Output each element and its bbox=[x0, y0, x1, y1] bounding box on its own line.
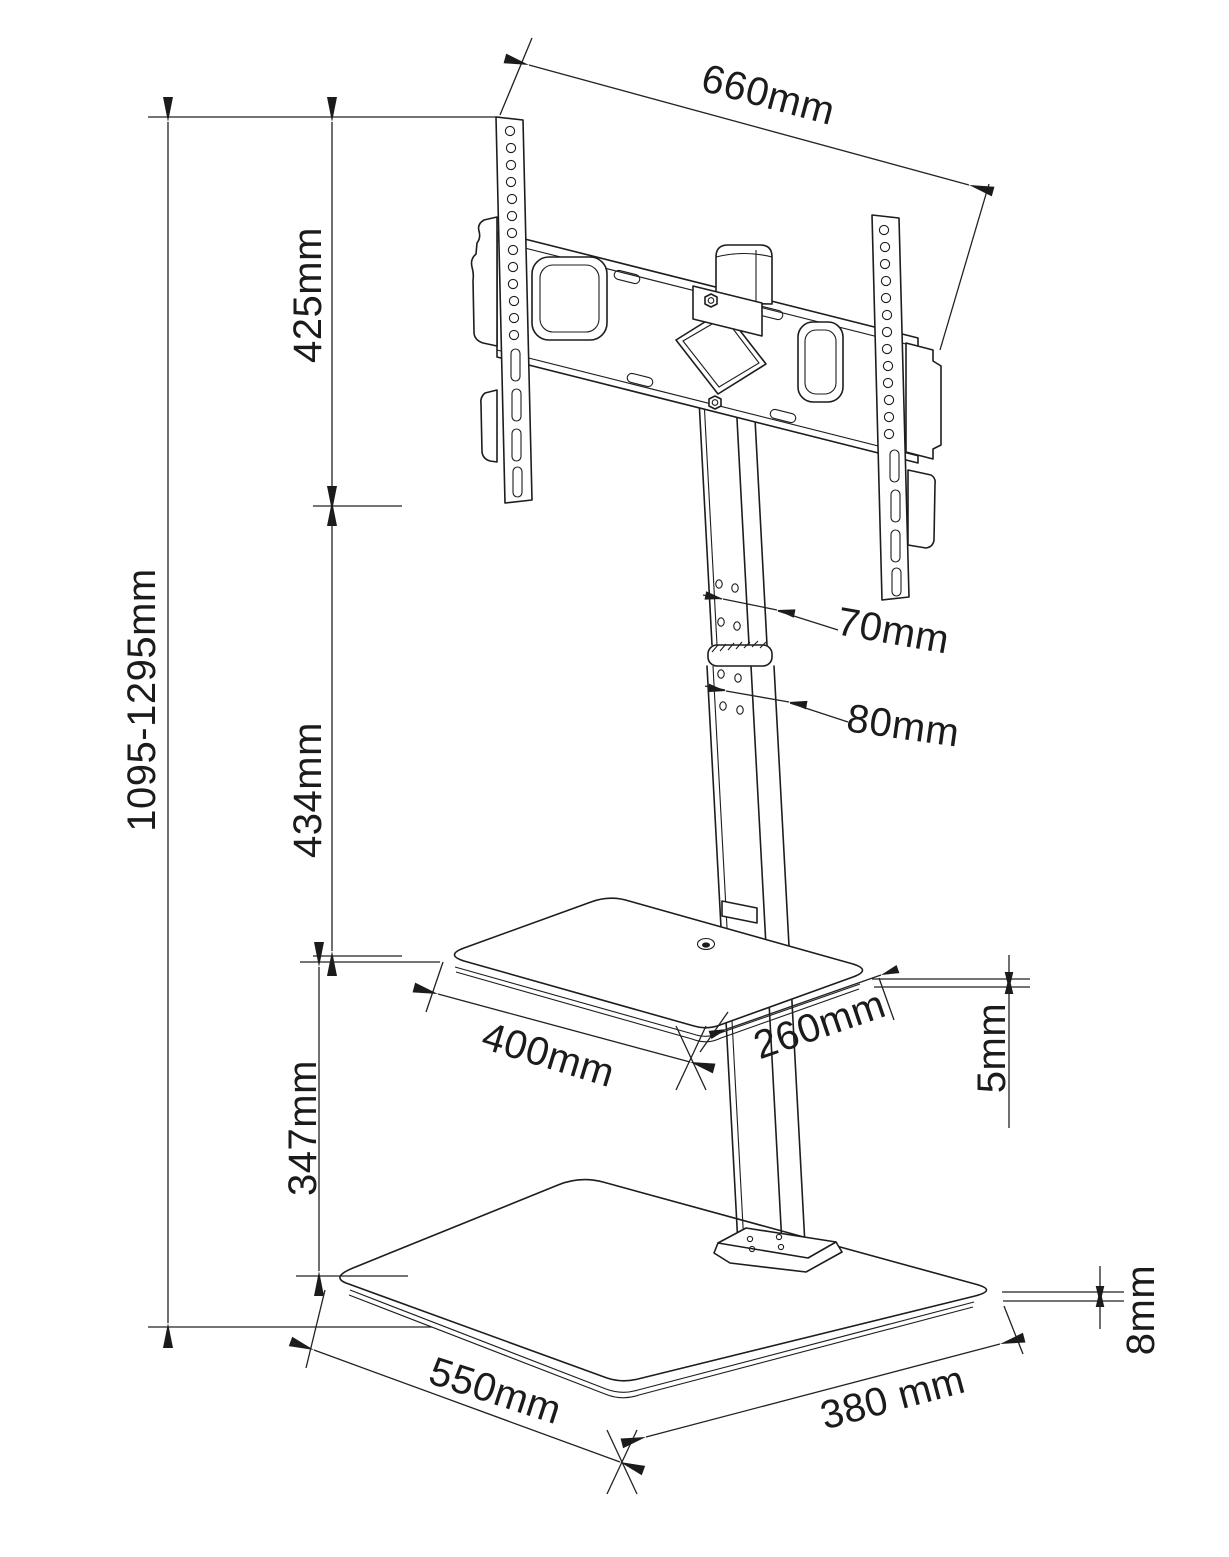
crossbar-end-cap bbox=[906, 343, 941, 459]
pole-collar bbox=[708, 641, 772, 666]
shelf-thickness-label: 5mm bbox=[970, 1003, 1014, 1093]
base-thickness-label: 8mm bbox=[1119, 1265, 1163, 1355]
lower-pole-label: 80mm bbox=[844, 696, 962, 755]
bracket-width-label: 660mm bbox=[697, 56, 840, 134]
left-lower-plate bbox=[481, 390, 497, 462]
diagram-canvas: 1095-1295mm 425mm 434mm 347mm 660mm bbox=[0, 0, 1229, 1557]
right-lower-plate bbox=[908, 470, 935, 548]
pole-column bbox=[699, 400, 805, 1245]
dim-shelf-to-base: 347mm bbox=[281, 962, 440, 1276]
shelf-to-base-label: 347mm bbox=[281, 1060, 325, 1196]
left-vesa-rail bbox=[496, 117, 532, 503]
dim-shelf-thickness: 5mm bbox=[872, 955, 1030, 1128]
shelf-width-label: 400mm bbox=[477, 1014, 620, 1096]
upper-pole-label: 70mm bbox=[834, 600, 953, 663]
base-width-label: 550mm bbox=[424, 1349, 567, 1433]
dim-base-thickness: 8mm bbox=[1002, 1265, 1163, 1355]
overall-height-label: 1095-1295mm bbox=[120, 568, 164, 831]
left-backing-plate bbox=[472, 217, 498, 346]
tv-stand-dimension-diagram: 1095-1295mm 425mm 434mm 347mm 660mm bbox=[0, 0, 1229, 1557]
bracket-height-label: 425mm bbox=[286, 227, 330, 363]
base-depth-label: 380 mm bbox=[816, 1358, 970, 1439]
pole-top-cap bbox=[693, 245, 772, 336]
right-vesa-rail bbox=[872, 215, 909, 600]
dim-lower-pole: 80mm bbox=[705, 686, 962, 756]
bracket-to-shelf-label: 434mm bbox=[286, 722, 330, 858]
dim-bracket-height: 425mm bbox=[286, 122, 402, 506]
dim-bracket-to-shelf: 434mm bbox=[286, 511, 402, 956]
shelf-pole-clamp bbox=[722, 901, 757, 923]
dim-overall-height: 1095-1295mm bbox=[120, 122, 168, 1323]
upper-tube bbox=[699, 400, 767, 645]
